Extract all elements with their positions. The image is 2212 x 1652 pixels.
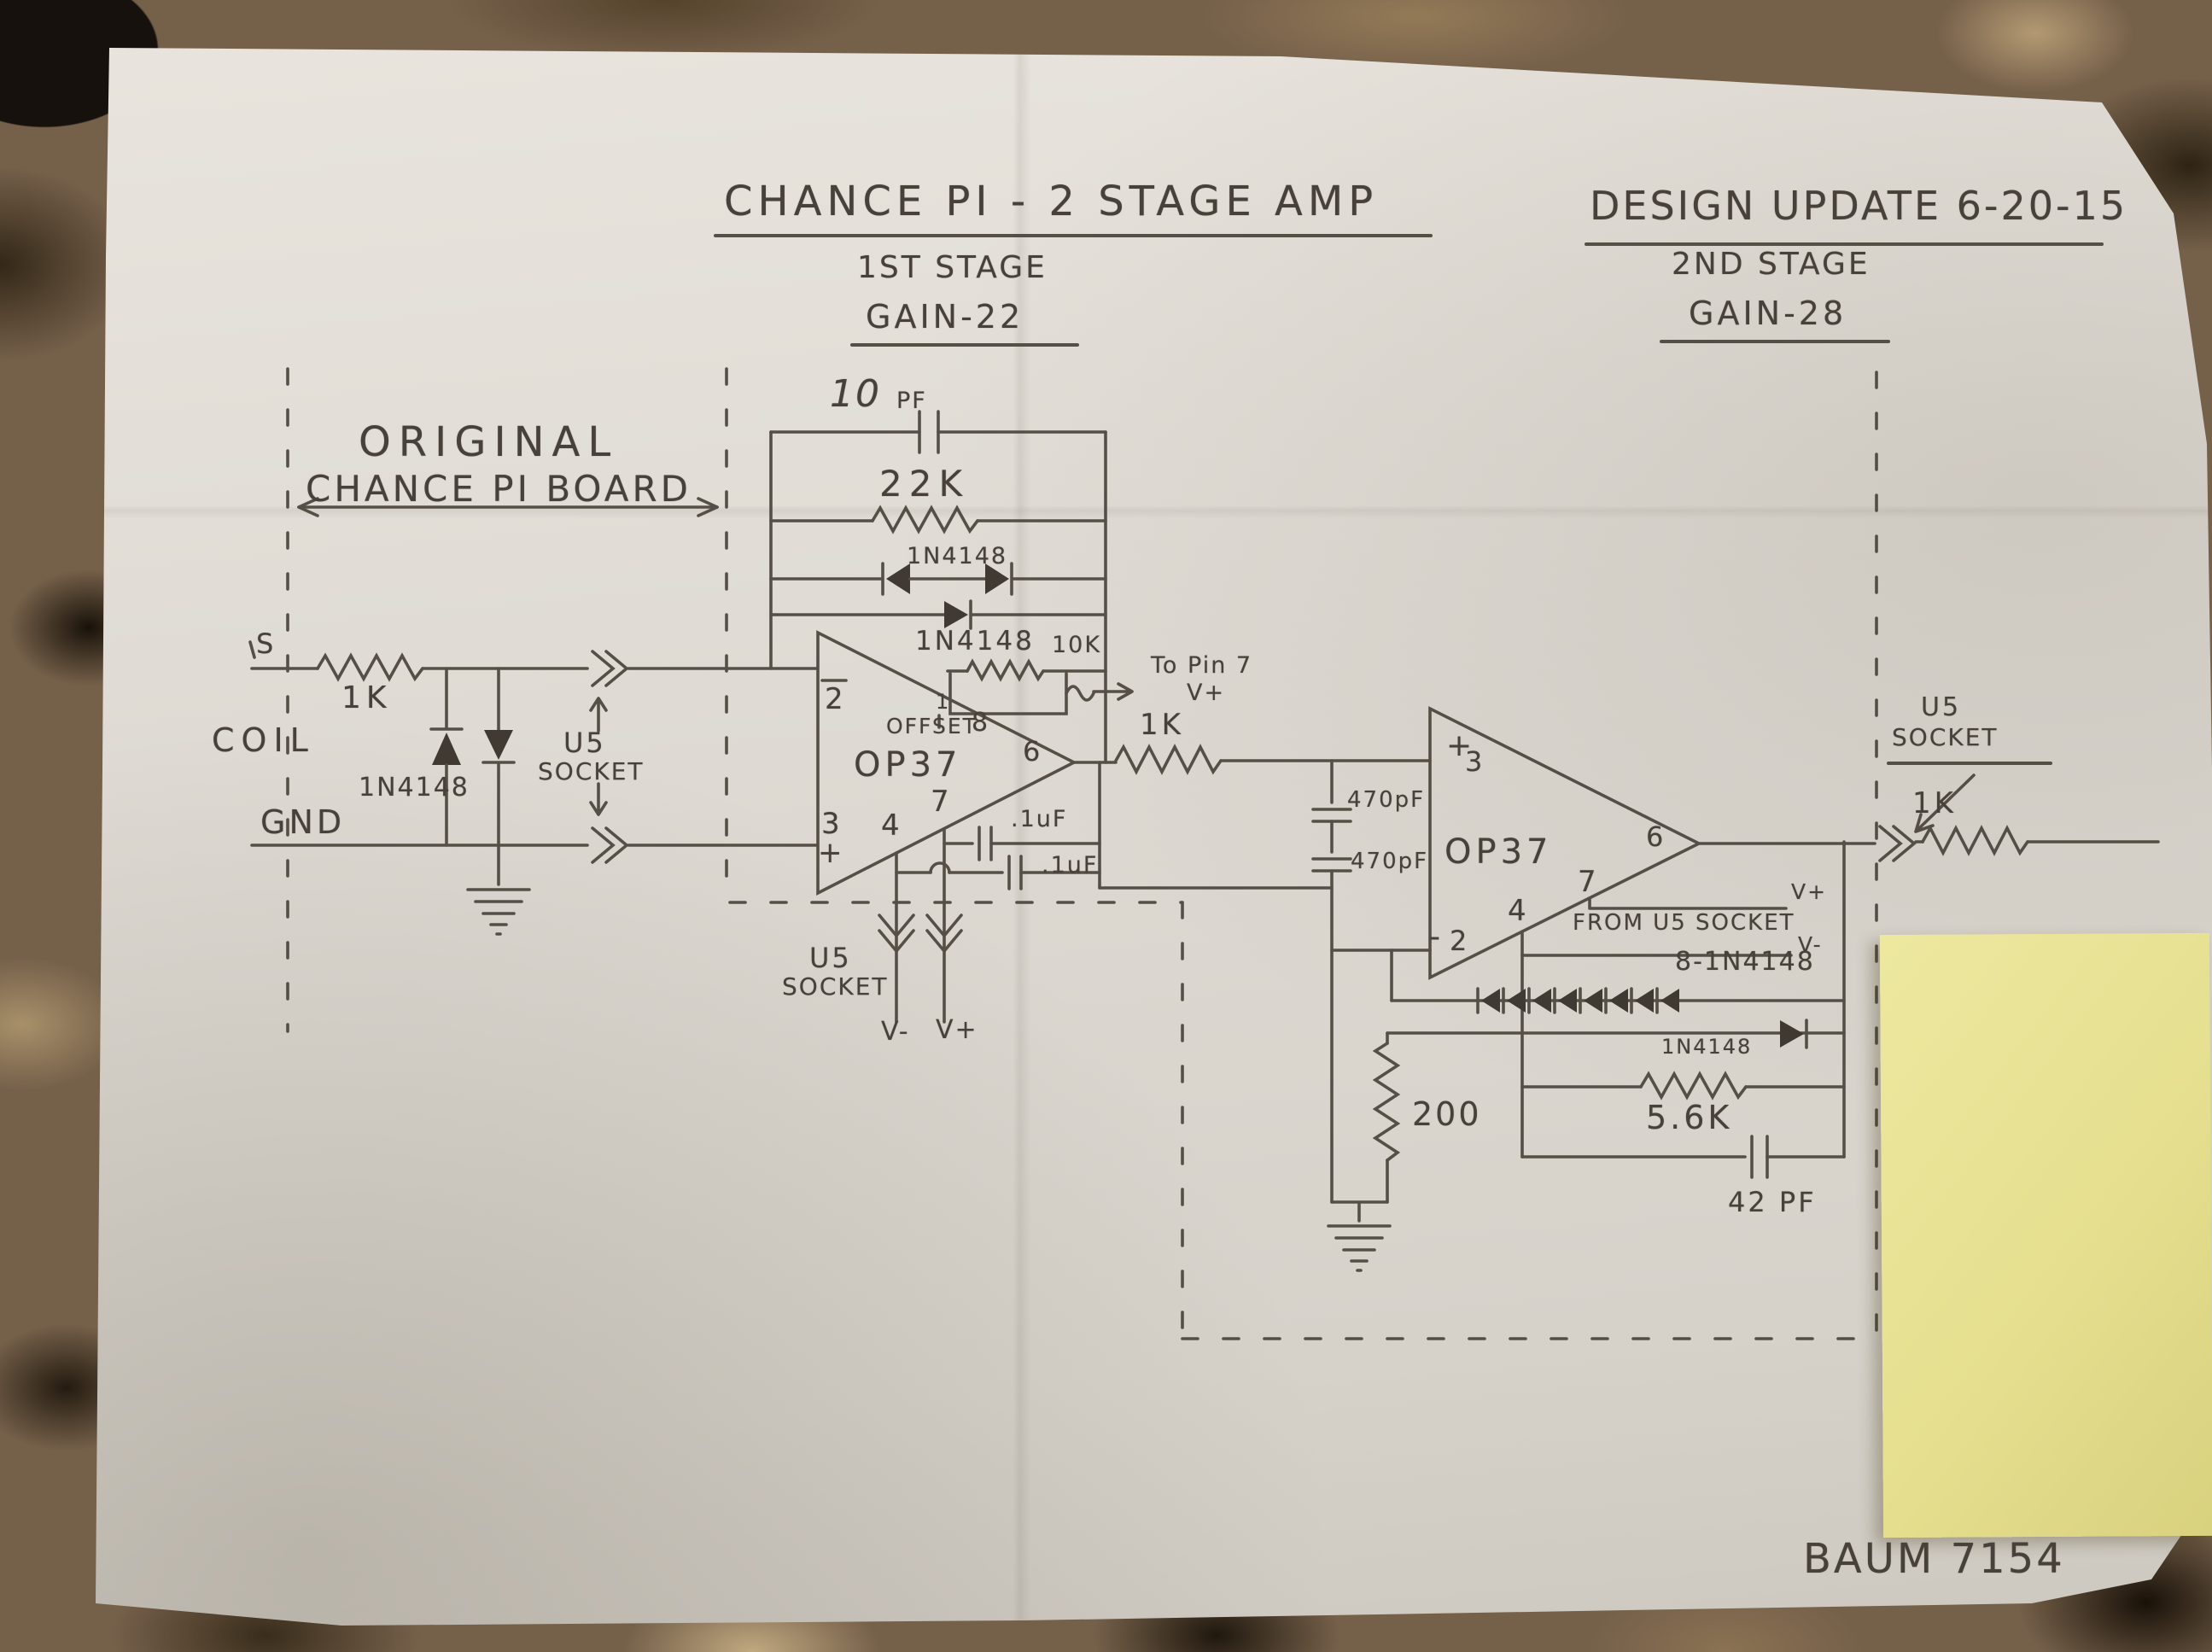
offset-pin8: 8 (972, 710, 989, 736)
input-resistor-label: 1K (341, 683, 392, 714)
fb-diode-label: 1N4148 (915, 628, 1035, 655)
fb-resistor-label: 22K (879, 466, 969, 502)
fb-diode-pair-label: 1N4148 (907, 545, 1007, 568)
v-plus-label: V+ (936, 1018, 978, 1043)
offset-label: OFFSET (886, 715, 978, 737)
fb2-cap-label: 42 PF (1728, 1188, 1817, 1216)
shunt-resistor-label: 200 (1412, 1098, 1482, 1130)
input-network (250, 642, 817, 934)
socket-chevron-signal (592, 651, 627, 686)
gnd-label: GND (260, 806, 345, 838)
output-resistor-label: 1K (1912, 789, 1957, 818)
u5-socket-output-2: SOCKET (1892, 726, 1999, 750)
op1-pin4: 4 (881, 811, 902, 840)
coupling-cap1-label: 470pF (1347, 789, 1425, 811)
from-u5-note: FROM U5 SOCKET (1573, 912, 1795, 934)
pin7-vplus-line (1590, 898, 1786, 908)
u5-socket-supply-1: U5 (809, 944, 852, 972)
stage1-gain: GAIN-22 (866, 301, 1024, 333)
diode-clamp-up (431, 668, 462, 729)
socket-chevron-gnd (592, 828, 627, 862)
op1-pin7: 7 (931, 787, 951, 816)
fb-cap-value: 10 (830, 376, 881, 413)
signature: BAUM 7154 (1803, 1538, 2065, 1579)
clamp-diodes-label: 1N4148 (359, 775, 470, 801)
trim-pot-label: 10K (1052, 633, 1101, 657)
op2-vplus-label: V+ (1791, 881, 1827, 902)
opamp1-label: OP37 (854, 748, 962, 782)
diode-pair-row (771, 563, 883, 594)
op1-pin3-sign: + (818, 838, 844, 867)
u5-socket-output-1: U5 (1921, 695, 1961, 721)
diode-string-label: 8-1N4148 (1675, 949, 1815, 975)
op1-pin6: 6 (1023, 738, 1042, 765)
to-pin7-rail: V+ (1187, 681, 1225, 704)
u5-arrow-down (591, 784, 606, 814)
u5-socket-supply-2: SOCKET (782, 975, 889, 999)
stage2-gain: GAIN-28 (1689, 297, 1847, 330)
v-minus-label: V- (881, 1019, 910, 1045)
op2-pin2: 2 (1450, 927, 1468, 954)
to-pin7-note: To Pin 7 (1151, 654, 1252, 677)
socket-chevron-output (1880, 826, 1914, 861)
u5-socket-input-2: SOCKET (538, 760, 645, 784)
op2-pin4: 4 (1508, 896, 1528, 925)
terminal-s: S (256, 630, 275, 657)
op2-pin3: 3 (1465, 748, 1484, 775)
page-title: CHANCE PI - 2 STAGE AMP (724, 181, 1378, 222)
u5-socket-input-1: U5 (563, 729, 606, 756)
coil-label: COIL (212, 724, 315, 756)
bypass-cap2-label: .1uF (1042, 854, 1098, 877)
ground-symbol-input (468, 890, 529, 934)
fb-cap-unit: PF (896, 389, 927, 412)
resistor-1k-coupling (1116, 747, 1221, 772)
op2-pin2-sign: - (1429, 922, 1442, 953)
bypass-cap1-label: .1uF (1011, 808, 1067, 831)
resistor-1k-input (318, 656, 423, 679)
fb2-diode-label: 1N4148 (1661, 1036, 1752, 1057)
coupling-cap2-label: 470pF (1351, 850, 1428, 873)
board-note-line1: ORIGINAL (359, 422, 618, 463)
coupling-resistor-label: 1K (1140, 710, 1184, 739)
offset-pin1: 1 (936, 692, 950, 712)
stage1-title: 1ST STAGE (857, 253, 1048, 283)
to-pin7-arrow (1094, 684, 1132, 699)
op2-pin6: 6 (1646, 823, 1665, 850)
capacitor-10pf (919, 412, 938, 452)
op1-pin2: 2 (825, 685, 845, 714)
op1-pin3: 3 (821, 809, 842, 838)
opamp2-label: OP37 (1445, 835, 1553, 869)
resistor-22k (873, 508, 978, 531)
op2-pin7: 7 (1578, 867, 1598, 896)
fb2-resistor-label: 5.6K (1646, 1101, 1732, 1134)
stage2-title: 2ND STAGE (1672, 249, 1871, 280)
sticky-note (1880, 933, 2212, 1538)
resistor-1k-output (1923, 828, 2028, 853)
design-update: DESIGN UPDATE 6-20-15 (1590, 186, 2127, 225)
ground-symbol-stage2 (1328, 1226, 1390, 1270)
photo-scene: CHANCE PI - 2 STAGE AMP DESIGN UPDATE 6-… (0, 0, 2212, 1652)
board-note-line2: CHANCE PI BOARD (306, 471, 692, 507)
